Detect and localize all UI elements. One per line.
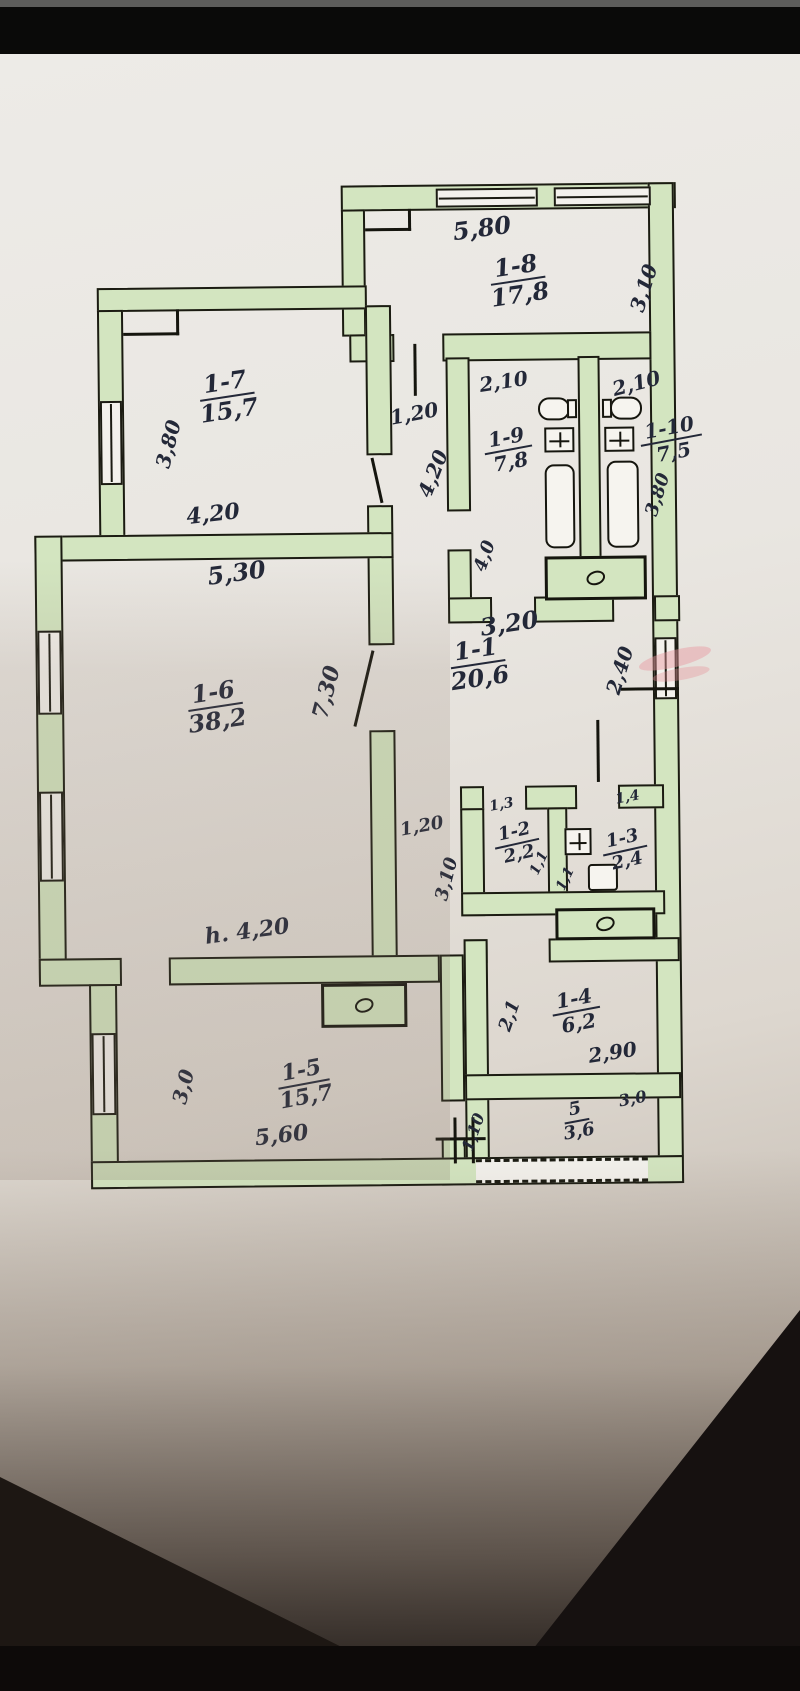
sink-icon xyxy=(604,427,634,452)
bathtub-icon xyxy=(545,464,576,548)
dim-5-30-1-6: 5,30 xyxy=(206,554,268,590)
wall-top-1-2-1-3 xyxy=(525,785,577,810)
corner-step-line xyxy=(408,209,411,231)
room-label-1-6: 1-6 38,2 xyxy=(182,676,248,738)
dim-4-0-corridor: 4,0 xyxy=(470,538,500,575)
room-label-1-1: 1-1 20,6 xyxy=(445,633,511,695)
room-label-1-5: 1-5 15,7 xyxy=(273,1055,335,1114)
dim-7-30-1-6: 7,30 xyxy=(307,663,346,721)
room-label-1-8: 1-8 17,8 xyxy=(485,250,551,312)
vent-shaft xyxy=(545,555,647,600)
wall-top-1-6 xyxy=(34,532,393,562)
wall-top-1-2 xyxy=(460,786,484,810)
dim-1-20-corridor: 1,20 xyxy=(388,397,440,430)
dimension-tick xyxy=(621,687,679,691)
room-area: 17,8 xyxy=(489,277,551,311)
dim-2-90-1-4: 2,90 xyxy=(587,1037,639,1068)
room-area: 3,6 xyxy=(562,1119,596,1144)
corner-step-line xyxy=(365,228,411,231)
toilet-tank-icon xyxy=(602,399,612,418)
dim-3-0-room5: 3,0 xyxy=(617,1087,648,1111)
room-label-1-7: 1-7 15,7 xyxy=(194,366,260,428)
dim-4-20-bottom-1-7: 4,20 xyxy=(185,498,241,530)
room-area: 38,2 xyxy=(187,704,249,738)
wall-top-1-5 xyxy=(169,955,440,986)
toilet-tank-icon xyxy=(567,399,577,418)
wall-top-1-7 xyxy=(97,285,367,312)
room-label-5: 5 3,6 xyxy=(558,1098,596,1144)
sink-icon xyxy=(544,427,574,452)
vent-shaft xyxy=(555,907,655,940)
room-area: 15,7 xyxy=(198,393,260,427)
room-label-1-10: 1-10 7,5 xyxy=(637,412,706,468)
room-label-1-3: 1-3 2,4 xyxy=(599,825,651,875)
door-leaf-line xyxy=(353,650,374,727)
window-symbol xyxy=(37,631,62,715)
dim-3-0-left-1-5: 3,0 xyxy=(167,1067,199,1107)
dimension-tick xyxy=(596,720,600,782)
window-symbol xyxy=(39,792,64,882)
vent-shaft xyxy=(321,983,407,1028)
corner-step-line xyxy=(123,332,179,336)
dim-1-20-leg: 1,20 xyxy=(398,812,445,841)
wall-bottom-bathrooms xyxy=(654,595,680,621)
window-symbol xyxy=(554,186,651,206)
sink-icon xyxy=(564,828,591,855)
window-symbol xyxy=(436,188,538,208)
wall-right-1-5 xyxy=(440,954,466,1101)
vent-circle-icon xyxy=(594,914,616,933)
wall-left-1-8 xyxy=(341,209,366,336)
corner-step-line xyxy=(176,309,179,335)
photo-floor-edge xyxy=(0,1646,800,1691)
wall-top-1-4 xyxy=(549,937,680,962)
scanned-floor-plan-photo: 1-8 17,8 1-7 15,7 1-9 7,8 1-10 7,5 1-1 2… xyxy=(0,0,800,1691)
dim-2-1-1-4: 2,1 xyxy=(494,997,524,1034)
wall-left-bathrooms xyxy=(445,357,471,511)
floor-plan-drawing: 1-8 17,8 1-7 15,7 1-9 7,8 1-10 7,5 1-1 2… xyxy=(0,0,800,1691)
balcony-window-dashed xyxy=(476,1157,648,1183)
wall-corridor-west xyxy=(367,505,394,645)
dim-5-80: 5,80 xyxy=(451,210,513,246)
dim-2-10-1-9: 2,10 xyxy=(478,366,530,397)
bathtub-icon xyxy=(607,460,640,547)
room-label-1-4: 1-4 6,2 xyxy=(549,984,605,1038)
dim-3-10-leg: 3,10 xyxy=(431,855,462,903)
dim-1-3: 1,3 xyxy=(488,795,515,815)
wall-bottom-1-4 xyxy=(465,1072,681,1100)
wall-top-bathrooms xyxy=(442,331,651,361)
room-area: 20,6 xyxy=(449,661,511,695)
window-symbol xyxy=(92,1033,117,1115)
dim-h-4-20: h. 4,20 xyxy=(203,913,291,950)
toilet-icon xyxy=(538,397,570,420)
wall-corridor-west xyxy=(365,305,393,455)
wall-exterior-left-1-6 xyxy=(34,536,67,986)
vent-circle-icon xyxy=(353,996,375,1015)
dimension-tick xyxy=(413,344,417,396)
door-leaf-line xyxy=(371,458,384,504)
wall-corridor-west xyxy=(369,730,397,960)
dim-3-80-left-1-7: 3,80 xyxy=(151,417,186,470)
vent-circle-icon xyxy=(585,568,607,587)
wall-top-1-5 xyxy=(39,958,122,987)
room-label-1-9: 1-9 7,8 xyxy=(481,423,537,477)
window-symbol xyxy=(100,401,123,485)
dim-5-60-1-5: 5,60 xyxy=(253,1119,309,1151)
